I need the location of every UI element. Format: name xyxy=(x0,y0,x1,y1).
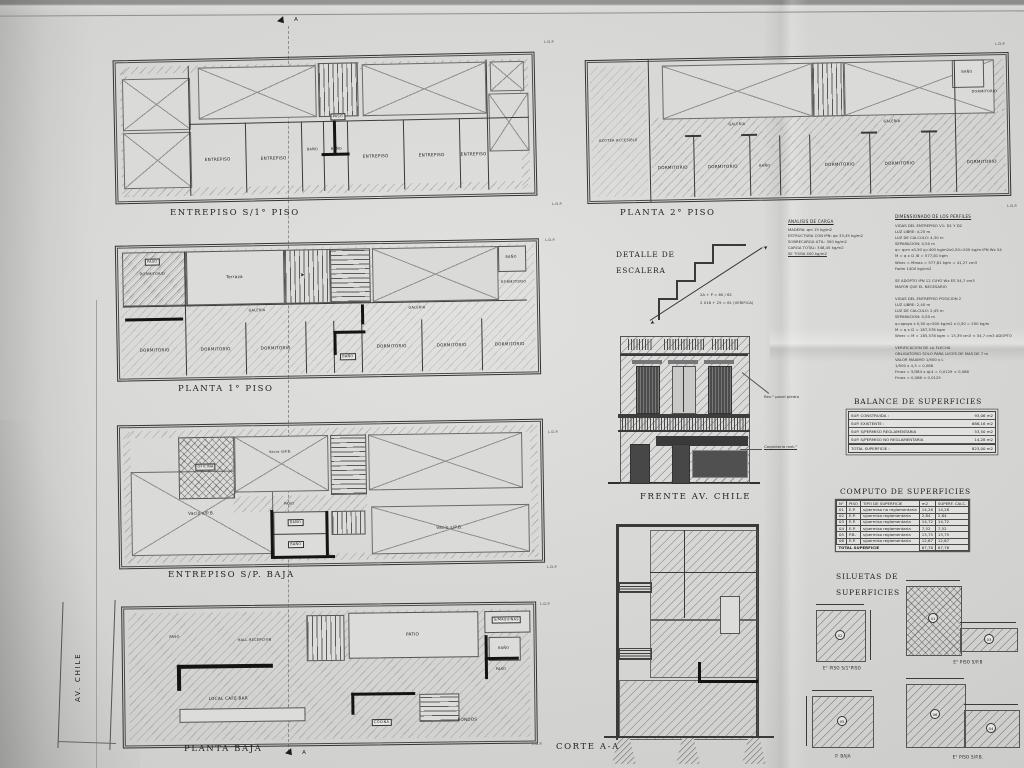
silueta-label: E° PISO S/1°PISO xyxy=(823,666,861,671)
balcony-edge xyxy=(618,430,750,432)
plan-title-entrepiso-spb: ENTREPISO S/P. BAJA xyxy=(168,570,295,580)
dim-line xyxy=(806,696,807,746)
section-flag-top-icon xyxy=(277,16,287,26)
room-label: FONDOS xyxy=(458,717,478,722)
dim-line: Wnec = M = 185,578 kgm = 13,39 cm3 < 54,… xyxy=(895,333,1012,339)
balance-total-label: TOTAL SUPERFICIE : xyxy=(851,446,890,451)
void-room xyxy=(662,63,813,120)
dim-line: Fmax = 0,086 < 0,0125 xyxy=(895,375,1012,381)
room-label: DORMITORIO xyxy=(658,165,688,171)
room-label: GALERIA xyxy=(249,308,266,312)
room-label: ENTREPISO xyxy=(363,153,389,159)
balcony-door xyxy=(672,366,696,414)
dim-line xyxy=(964,704,1018,705)
section-letter-top: A xyxy=(294,17,298,23)
entry-door xyxy=(630,444,650,484)
stairs-run xyxy=(284,249,331,304)
stairs-core xyxy=(330,248,371,303)
silueta-label: E° PISO S/P.B. xyxy=(953,755,984,760)
footing xyxy=(742,738,766,764)
room-label: Vacio s/P.B. xyxy=(436,524,463,529)
blueprint-sheet: A A ENTREPISO ENTREPISO BAÑO BAÑO ENTREP… xyxy=(0,0,1024,768)
ldp-marker: L.D.P. xyxy=(540,602,550,606)
room-label: BAÑO xyxy=(498,646,509,650)
window-lintel xyxy=(632,360,662,364)
section-mass xyxy=(650,620,758,678)
section-mass xyxy=(650,530,758,620)
room-label: GALERIA xyxy=(728,122,745,126)
room-label: DORMITORIO xyxy=(140,272,166,276)
room-label: OFICINA xyxy=(195,463,216,470)
void-room xyxy=(368,432,523,490)
section-roof xyxy=(616,524,759,527)
stairs-small xyxy=(331,510,365,535)
stair-riser xyxy=(712,244,714,264)
balance-total-row: TOTAL SUPERFICIE :823,00 m2 xyxy=(849,444,995,452)
silueta-number: 01 xyxy=(928,613,938,623)
ldp-marker: L.D.P. xyxy=(545,238,555,242)
room-label: PASO xyxy=(330,113,345,120)
window-shutter xyxy=(708,366,732,414)
silueta-number: 02 xyxy=(835,630,845,640)
pier xyxy=(685,135,701,137)
room-label: DORMITORIO xyxy=(967,159,997,165)
floor-slab xyxy=(619,582,652,593)
void-room xyxy=(122,78,191,131)
computo-total-row: TOTAL SUPERFICIE 67,78 67,78 xyxy=(837,544,969,550)
note-stone: Rev.° panel piedra xyxy=(764,394,799,400)
room-label: ENTREPISO xyxy=(261,155,287,161)
ldp-marker: L.D.P. xyxy=(995,42,1005,46)
heavy-wall xyxy=(698,662,701,682)
stairs-small xyxy=(419,693,459,721)
plan-title-entrepiso-s1: ENTREPISO S/1° PISO xyxy=(170,208,300,218)
balance-title: BALANCE DE SUPERFICIES xyxy=(854,397,982,406)
dim-line xyxy=(906,580,960,581)
stair-detail-drawing: ➤ ➤ xyxy=(648,236,798,328)
heavy-wall xyxy=(485,657,519,660)
counter xyxy=(179,707,305,723)
balance-value: 686,16 m2 xyxy=(972,421,993,426)
pier xyxy=(921,130,937,132)
room-label: PATIO xyxy=(406,631,419,636)
ldp-marker: L.D.P. xyxy=(548,430,558,434)
partition xyxy=(245,123,248,193)
dim-line xyxy=(870,610,871,660)
stairs xyxy=(812,62,845,117)
balance-value: 53,50 m2 xyxy=(974,429,993,434)
room-label: PASO xyxy=(496,667,506,671)
window-lintel xyxy=(704,360,734,364)
floor-slab xyxy=(619,648,652,660)
pier xyxy=(741,134,757,136)
sheet-frame-left xyxy=(96,300,97,768)
balance-row: SUP. S/PERMISO REGLAMENTARIA53,50 m2 xyxy=(849,428,995,436)
room-label: DORMITORIO xyxy=(261,345,291,351)
section-opening xyxy=(720,596,740,634)
silueta-number: 03 xyxy=(984,634,994,644)
room-label: GALERIA xyxy=(408,305,425,309)
room-label: BAÑO xyxy=(331,147,342,151)
partition xyxy=(301,121,304,191)
stair-tread xyxy=(658,298,676,300)
room-label: PASO xyxy=(284,502,294,506)
stair-landing xyxy=(712,244,746,246)
room-label: DORMITORIO xyxy=(885,160,915,166)
room-label: ENTREPISO xyxy=(461,151,487,157)
stair-riser xyxy=(676,280,678,300)
shop-window xyxy=(692,450,748,478)
void-room xyxy=(490,61,525,92)
silueta-number: 04 xyxy=(986,723,996,733)
room-label: PASO xyxy=(169,635,179,639)
stair-formula-2: 2 X18 + 25 = 61 (VERIFICA) xyxy=(700,300,753,306)
ldp-marker: L.D.P. xyxy=(547,565,557,569)
window-shutter xyxy=(636,366,660,414)
balance-total-value: 823,00 m2 xyxy=(972,446,993,451)
stair-riser xyxy=(658,298,660,320)
balance-label: SUP. EXISTENTE : xyxy=(851,421,884,426)
street-tick xyxy=(58,741,116,744)
section-title: CORTE A-A xyxy=(556,742,620,752)
elevation-title: FRENTE AV. CHILE xyxy=(640,492,751,502)
stair-tread xyxy=(694,262,712,264)
street-name: AV. CHILE xyxy=(74,653,82,702)
window-lintel xyxy=(668,360,698,364)
silueta-number: 06 xyxy=(930,709,940,719)
plan-title-planta-baja: PLANTA BAJA xyxy=(184,744,263,754)
slope-arrow-icon: ➤ xyxy=(648,318,655,326)
heavy-wall xyxy=(361,304,364,324)
room-label: ENTREPISO xyxy=(419,152,445,158)
stairs xyxy=(330,434,367,495)
room-label: DORMITORIO xyxy=(495,341,525,347)
heavy-wall xyxy=(325,511,328,555)
balcony-railing xyxy=(622,418,746,430)
room-label: DORMITORIO xyxy=(140,347,170,353)
heavy-wall xyxy=(335,330,365,333)
ldp-marker: L.D.P. xyxy=(532,742,542,746)
room-label: DORMITORIO xyxy=(501,280,527,284)
room-label: BAÑO xyxy=(961,70,972,74)
computo-total-m2: 67,78 xyxy=(919,544,935,550)
dimensionado-title: DIMENSIONADO DE LOS PERFILES xyxy=(895,214,971,219)
plan-planta-2-piso: BAÑO DORMITORIO GALERIA GALERIA AZOTEA A… xyxy=(585,52,1012,204)
room-label: DORMITORIO xyxy=(437,342,467,348)
void-room xyxy=(123,132,192,189)
storefront-band xyxy=(656,436,748,446)
balustrade xyxy=(628,339,652,350)
leader-line xyxy=(740,449,762,450)
azotea-hatch xyxy=(590,66,648,197)
room-label: BAÑO xyxy=(505,255,516,259)
balance-row: SUP. S/PERMISO NO REGLAMENTARIA14,28 m2 xyxy=(849,436,995,444)
analisis-title: ANALISIS DE CARGA xyxy=(788,219,834,224)
dim-line xyxy=(906,678,964,679)
heavy-wall xyxy=(351,693,354,715)
stairs xyxy=(306,615,345,661)
room-label: BAÑO xyxy=(759,164,770,168)
room-label: DORMITORIO xyxy=(708,164,738,170)
silueta-number: 05 xyxy=(837,716,847,726)
room-label: S/MAQUINAS xyxy=(492,616,521,623)
plan-entrepiso-s1-piso: ENTREPISO ENTREPISO BAÑO BAÑO ENTREPISO … xyxy=(113,52,538,205)
room-label: DORMITORIO xyxy=(377,343,407,349)
silueta-label: E° PISO S/P.B xyxy=(953,660,982,665)
balustrade xyxy=(664,339,704,350)
stair-tread xyxy=(676,280,694,282)
void-room xyxy=(488,93,529,152)
room-label: DORMITORIO xyxy=(201,346,231,352)
dim-line xyxy=(816,604,864,605)
note-metal: Carpinteria met.° xyxy=(764,444,797,450)
room-label: Vacio s/P.B. xyxy=(188,510,215,515)
heavy-wall xyxy=(698,680,758,683)
balance-value: 14,28 m2 xyxy=(974,437,993,442)
partition xyxy=(347,121,350,191)
analisis-lines: MADERA: qm 15 kg/m2 ESTRUCTURA CON IPN: … xyxy=(788,227,863,257)
plan-title-planta1: PLANTA 1° PISO xyxy=(178,384,274,394)
heavy-wall xyxy=(177,665,181,691)
floor-hatch xyxy=(651,111,1006,198)
room-label: Vacio s/P.B. xyxy=(269,450,292,454)
pier xyxy=(861,131,877,133)
room-label: AZOTEA ACCESIBLE xyxy=(599,138,638,143)
room-label: LOCAL CAFE BAR xyxy=(209,695,248,700)
void-room xyxy=(234,435,329,492)
balance-value: 93,06 m2 xyxy=(974,413,993,418)
room-label: BAÑO xyxy=(307,147,318,151)
ldp-marker: L.D.P. xyxy=(544,40,554,44)
plan-entrepiso-sp-baja: Vacio s/P.B. OFICINA Vacio s/P.B. PASO V… xyxy=(117,419,545,570)
stairs xyxy=(318,62,359,117)
computo-table: N° PISO TIPO DE SUPERFICIE m2 SUPERF. CA… xyxy=(836,500,969,551)
heavy-wall xyxy=(333,331,336,355)
section-line xyxy=(684,530,685,618)
room-label: BAÑO xyxy=(288,541,304,548)
room-label: HALL RECEPCION xyxy=(238,638,272,642)
plan-planta-1-piso: Terraza ➤ BAÑO DORMITORIO PASO DORMITORI… xyxy=(115,238,541,381)
balance-row: SUP. EXISTENTE :686,16 m2 xyxy=(849,420,995,428)
stair-direction-arrow-icon: ➤ xyxy=(300,272,305,278)
analisis-line: SE TOMA 400 kg/m2 xyxy=(788,251,863,257)
stair-riser xyxy=(694,262,696,282)
dim-line xyxy=(812,690,872,691)
silueta-label: P. BAJA xyxy=(835,754,850,759)
slope-arrow-icon: ➤ xyxy=(762,244,769,252)
balance-label: SUP. S/PERMISO REGLAMENTARIA xyxy=(851,429,916,434)
room-label: BAÑO xyxy=(340,353,356,360)
footing xyxy=(676,738,700,764)
void-room xyxy=(372,246,499,302)
balance-table: SUP. CONSTRUIDA :93,06 m2 SUP. EXISTENTE… xyxy=(848,411,996,453)
room-label: ENTREPISO xyxy=(205,156,231,162)
siluetas-title-2: SUPERFICIES xyxy=(836,588,900,597)
computo-total-calc: 67,78 xyxy=(935,544,968,550)
room-label: COCINA xyxy=(372,719,392,726)
section-mass xyxy=(619,680,758,740)
ldp-marker: L.D.P. xyxy=(1007,204,1017,208)
partition xyxy=(323,121,326,191)
room-label: GALERIA xyxy=(883,119,900,123)
plan-title-planta2: PLANTA 2° PISO xyxy=(620,208,716,218)
dimensionado-lines: VIGAS DEL ENTREPISO V1: D1 Y D2 LUZ LIBR… xyxy=(895,223,1012,381)
computo-title: COMPUTO DE SUPERFICIES xyxy=(840,487,971,496)
plan-planta-baja: PASO HALL RECEPCION PATIO S/MAQUINAS BAÑ… xyxy=(121,601,538,748)
sheet-frame-top xyxy=(0,10,1024,16)
dim-line xyxy=(960,622,1016,623)
section-corte xyxy=(612,522,764,752)
section-letter-bottom: A xyxy=(302,750,306,756)
section-line xyxy=(650,572,756,573)
section-flag-bottom-icon xyxy=(285,748,295,758)
shop-door xyxy=(672,444,690,484)
siluetas-title-1: SILUETAS DE xyxy=(836,572,898,581)
ldp-marker: L.D.P. xyxy=(552,202,562,206)
balance-label: SUP. S/PERMISO NO REGLAMENTARIA xyxy=(851,437,923,442)
void-room xyxy=(198,65,317,119)
room-label: PASO xyxy=(145,259,160,266)
street-line xyxy=(57,602,63,748)
wall-hatch xyxy=(530,425,539,557)
door-mullion xyxy=(683,366,684,412)
room-label: DORMITORIO xyxy=(825,161,855,167)
balance-row: SUP. CONSTRUIDA :93,06 m2 xyxy=(849,412,995,420)
stair-slope-line xyxy=(650,247,763,321)
balustrade xyxy=(712,339,740,350)
room-label: Terraza xyxy=(226,274,243,279)
elevation-frente xyxy=(608,332,760,496)
balance-label: SUP. CONSTRUIDA : xyxy=(851,413,889,418)
room-label: DORMITORIO xyxy=(972,89,998,93)
void-room xyxy=(362,62,487,117)
street-line xyxy=(109,600,115,750)
room-label: BAÑO xyxy=(288,519,304,526)
computo-total-label: TOTAL SUPERFICIE xyxy=(837,544,920,550)
ground-line xyxy=(604,736,774,738)
partition xyxy=(403,119,406,189)
cornice xyxy=(620,354,748,356)
stair-formula-1: 2A + P = 60 / 62 xyxy=(700,292,732,298)
